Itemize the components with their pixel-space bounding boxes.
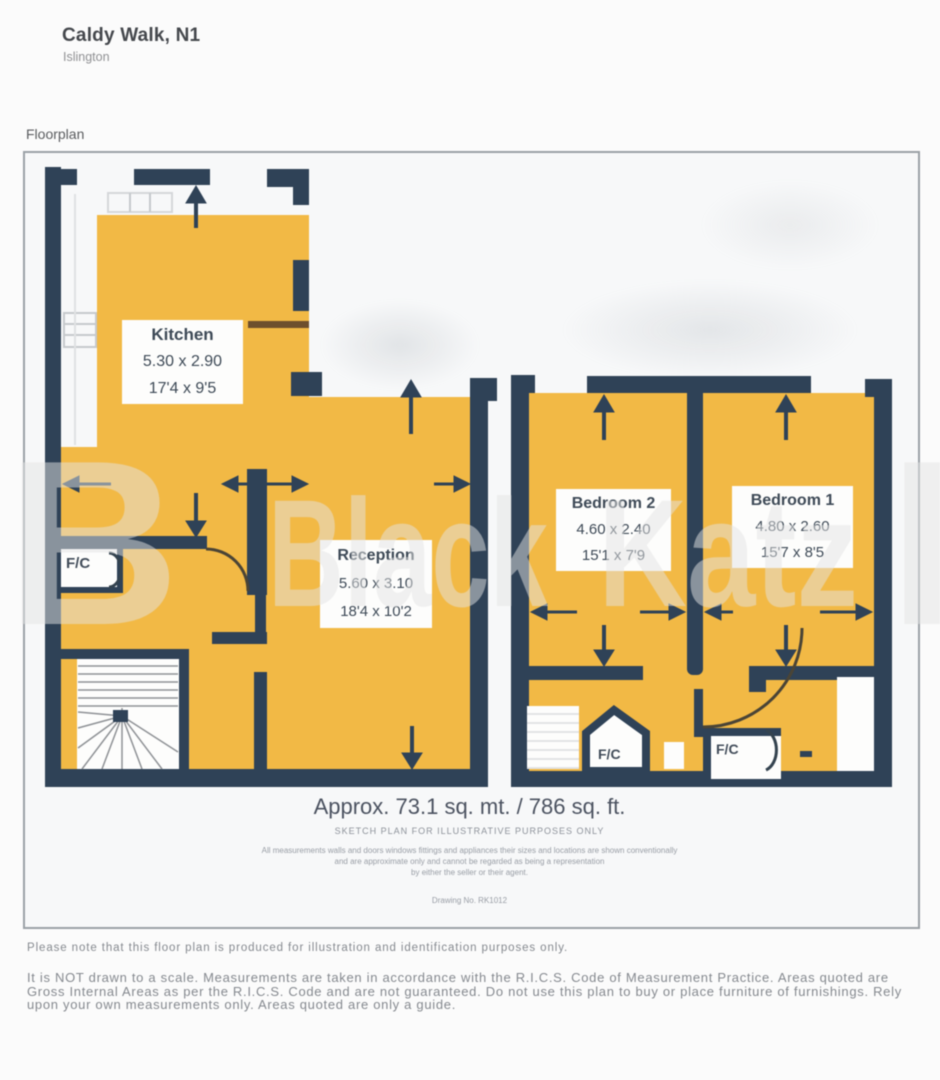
svg-text:F/C: F/C xyxy=(598,746,621,762)
